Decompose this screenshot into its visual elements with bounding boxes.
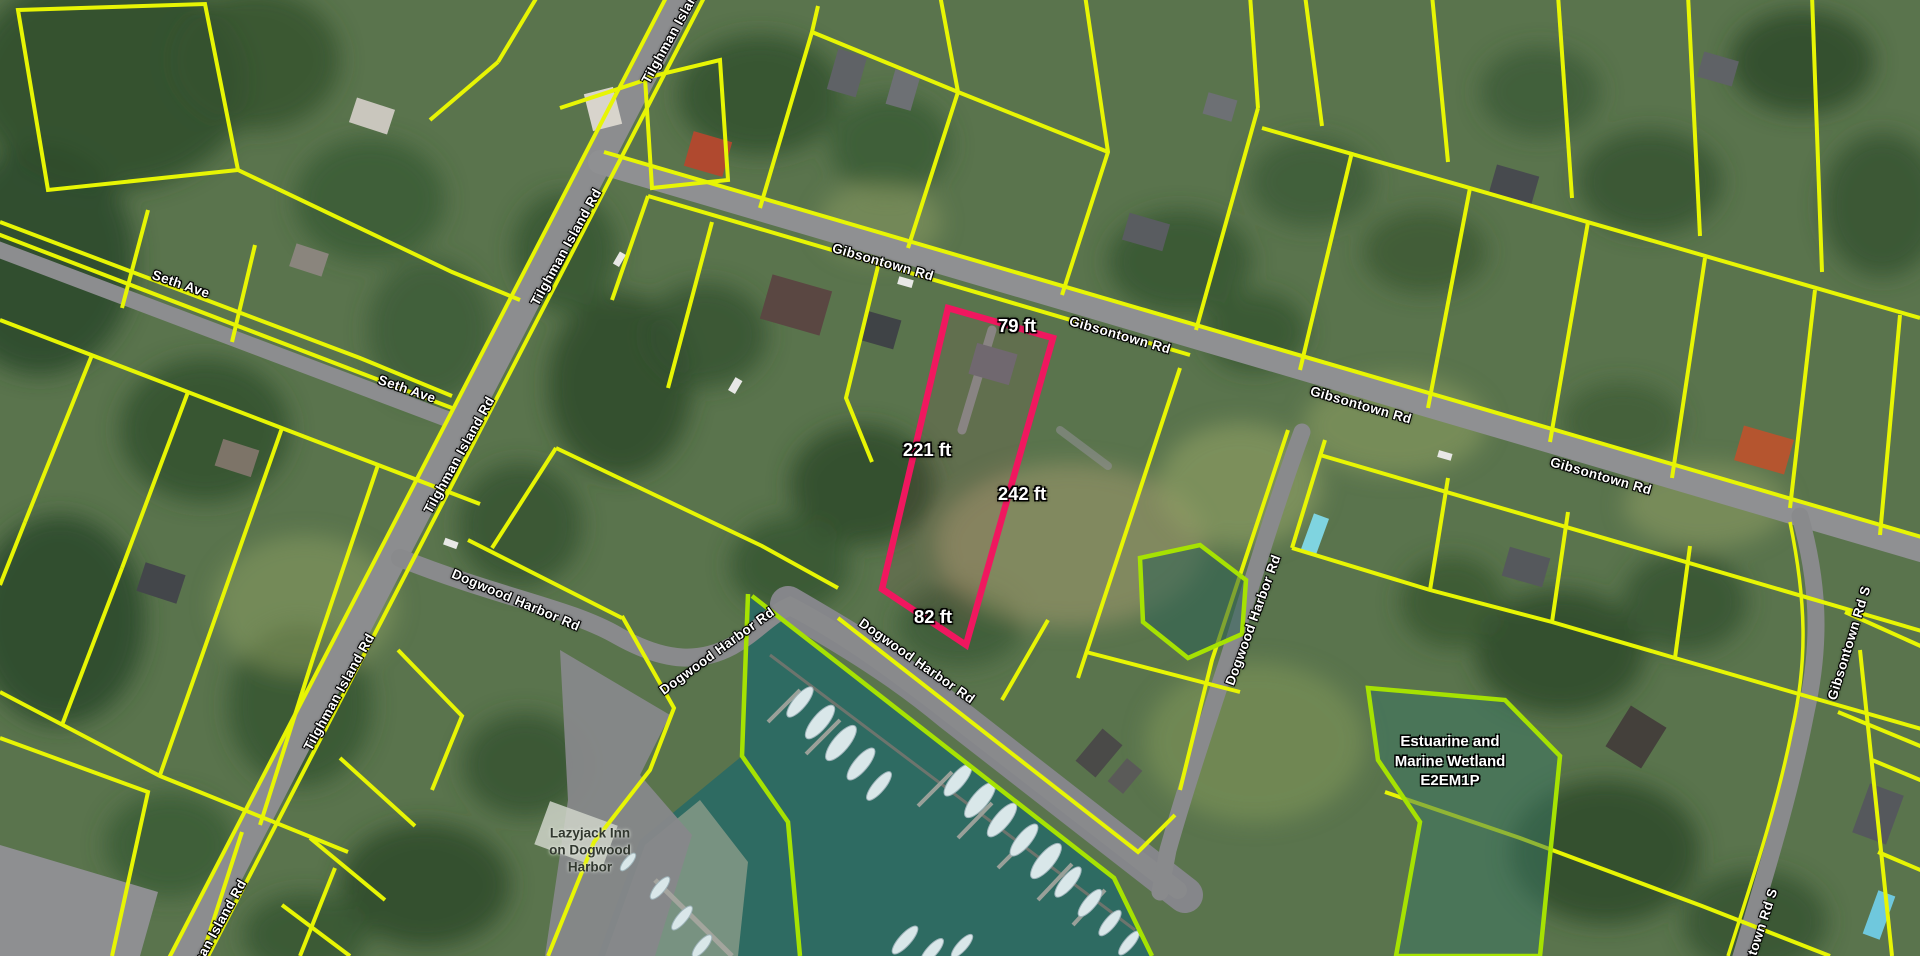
map-imagery	[0, 0, 1920, 956]
aerial-map-viewport[interactable]: Gibsontown RdGibsontown RdGibsontown RdG…	[0, 0, 1920, 956]
